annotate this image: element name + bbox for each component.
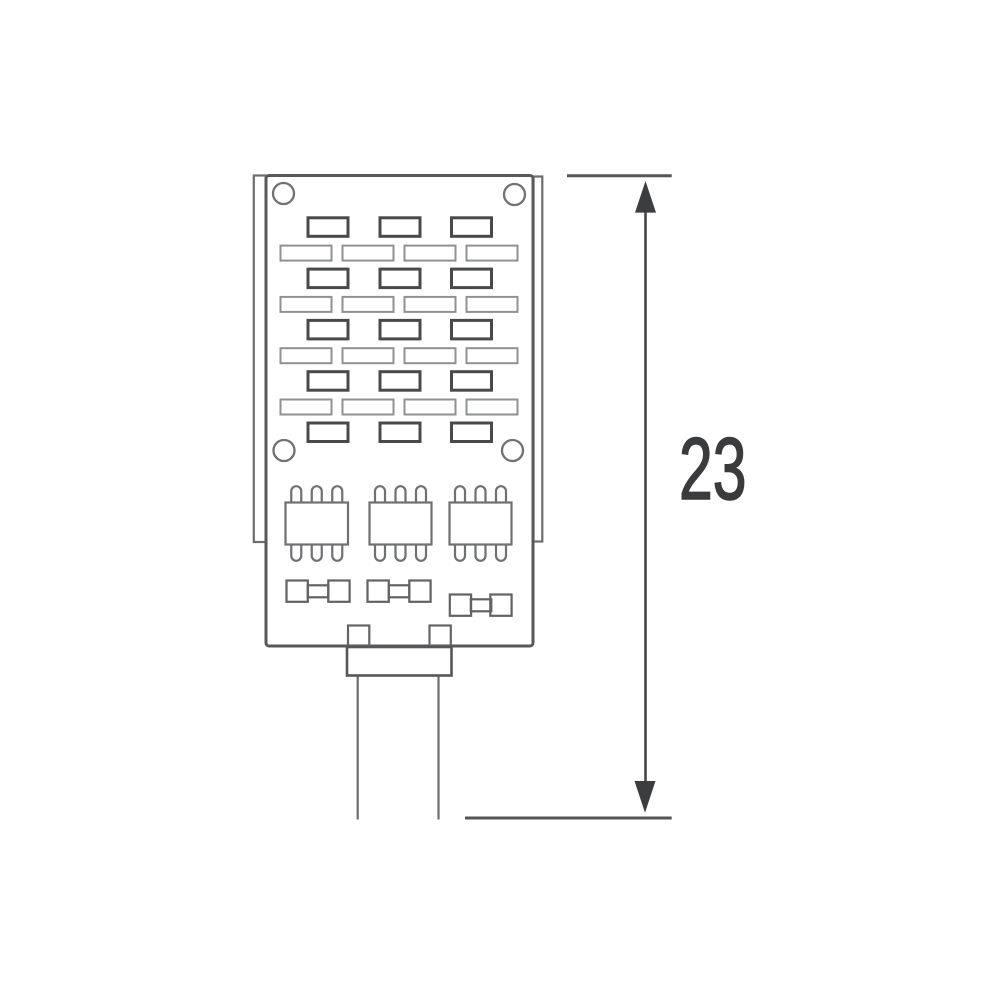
svg-text:23: 23 xyxy=(679,421,747,519)
